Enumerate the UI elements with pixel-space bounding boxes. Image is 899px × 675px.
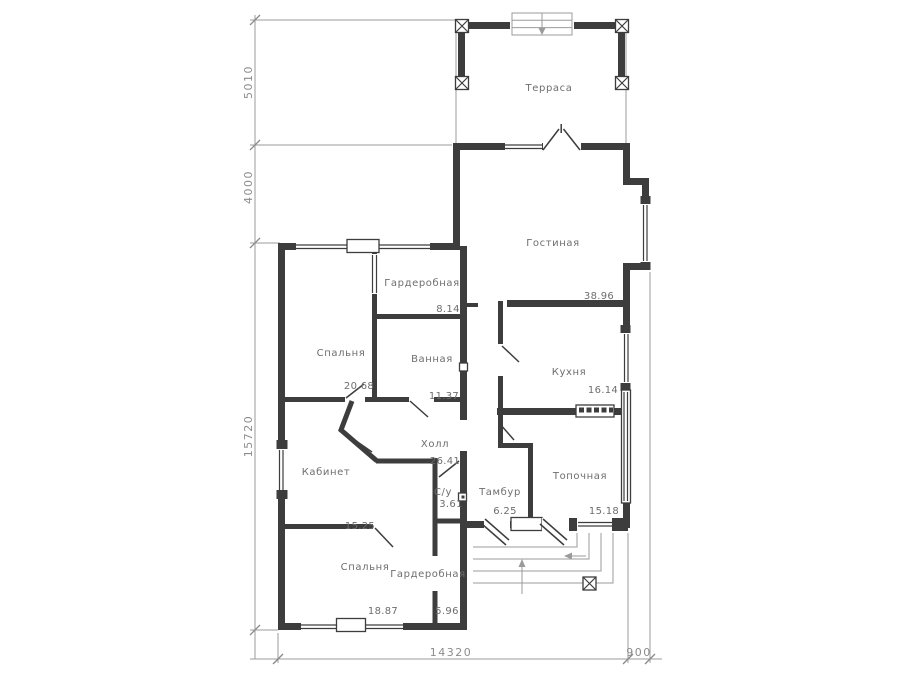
door-leaf-bedroom-bottom [375, 528, 393, 547]
room-label-office: Кабинет [302, 467, 351, 478]
column [616, 20, 629, 33]
terrace-door [543, 124, 581, 152]
boiler-window [622, 390, 631, 503]
column [456, 77, 469, 90]
kitchen-appliance-strip [576, 405, 614, 417]
area-label-kitchen: 16.14 [588, 385, 618, 396]
room-label-vestibule: Тамбур [478, 487, 521, 498]
dim-left-5010: 5010 [242, 65, 255, 99]
entry-doors [482, 518, 569, 546]
area-label-bathroom: 11.37 [429, 391, 459, 402]
room-label-bedroom-top: Спальня [317, 348, 366, 359]
dim-bottom-14320: 14320 [430, 646, 473, 659]
terrace-structure [456, 13, 626, 143]
area-label-boiler-room: 15.18 [589, 506, 619, 517]
room-label-bedroom-bottom: Спальня [341, 562, 390, 573]
area-label-bedroom-top: 20.68 [344, 381, 374, 392]
dim-bottom-900: 900 [626, 646, 652, 659]
area-label-living-room: 38.96 [584, 291, 614, 302]
column [456, 20, 469, 33]
room-label-wardrobe-top: Гардеробная [384, 278, 460, 289]
room-label-wc: С/у [434, 487, 452, 498]
room-label-living-room: Гостиная [526, 238, 580, 249]
area-label-vestibule: 6.25 [493, 506, 516, 517]
area-label-bedroom-bottom: 18.87 [368, 606, 398, 617]
area-label-wardrobe-top: 8.14 [436, 304, 459, 315]
dim-left-4000: 4000 [242, 170, 255, 204]
room-label-bathroom: Ванная [411, 354, 453, 365]
door-leaf-kitchen [502, 346, 519, 362]
entry-pier [511, 518, 542, 531]
interior-walls [285, 246, 628, 624]
room-label-terrace: Терраса [525, 83, 573, 94]
area-label-wc: 3.61 [439, 499, 462, 510]
floor-plan-sheet: Терраса Гостиная 38.96 Кухня 16.14 Спаль… [0, 0, 899, 675]
room-label-hall: Холл [421, 439, 449, 450]
area-label-hall: 26.41 [430, 456, 460, 467]
door-leaf-office [346, 434, 372, 452]
floor-plan-drawing: Терраса Гостиная 38.96 Кухня 16.14 Спаль… [0, 0, 899, 675]
terrace-steps [512, 13, 572, 35]
room-label-boiler-room: Топочная [552, 471, 607, 482]
room-label-wardrobe-bottom: Гардеробная [390, 569, 466, 580]
column [583, 577, 596, 590]
area-label-wardrobe-bottom: 5.96 [435, 606, 458, 617]
dim-left-15720: 15720 [242, 415, 255, 458]
window-pier-top [347, 240, 379, 253]
door-leaf-bathroom [410, 401, 428, 417]
room-label-kitchen: Кухня [552, 367, 587, 378]
window-pier-bottom [337, 619, 366, 632]
area-label-office: 15.25 [345, 521, 375, 532]
column [616, 77, 629, 90]
